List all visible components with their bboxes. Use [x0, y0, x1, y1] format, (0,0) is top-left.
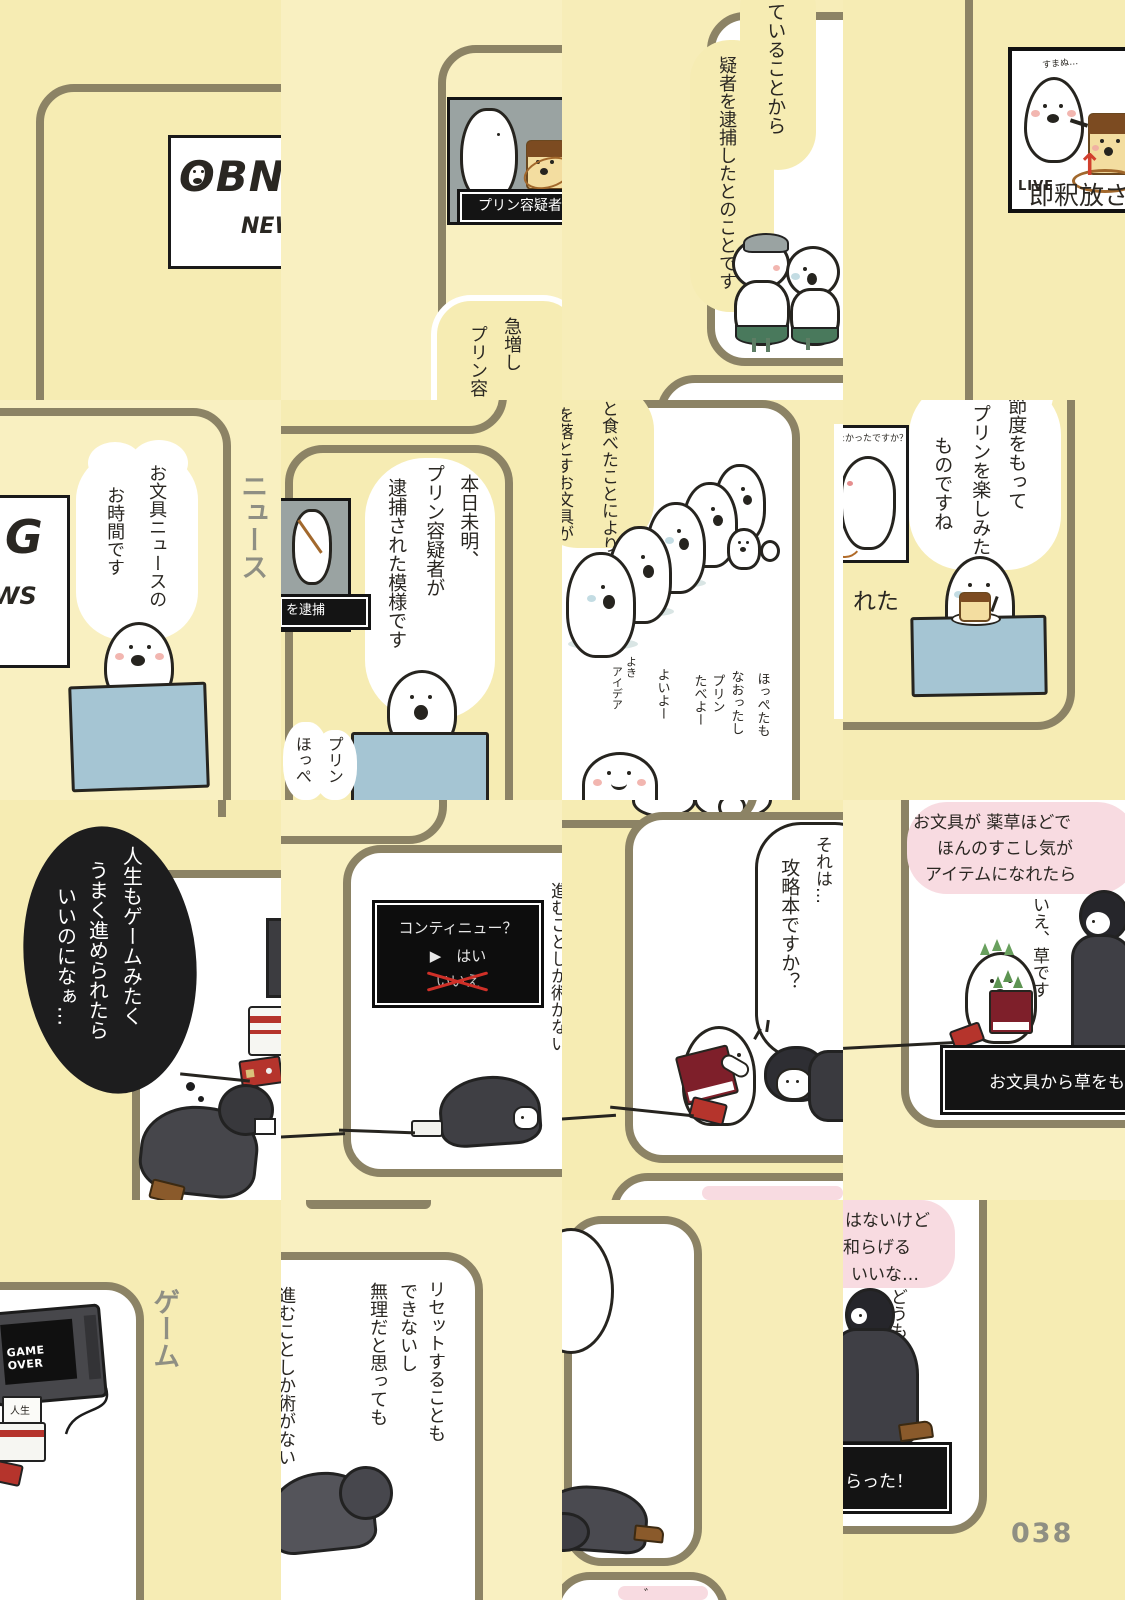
person-head: [339, 1466, 393, 1520]
chatter-text: プリン: [709, 674, 724, 713]
balloon-text: 人生もゲームみたく: [120, 846, 142, 1026]
small-blob: [727, 528, 761, 570]
speech-text: プリン: [325, 736, 343, 784]
tile-r0c1: 急増し プリン容 プリン容疑者を: [281, 0, 563, 400]
caption-text: プリン容疑者を: [478, 198, 563, 214]
boot: [633, 1524, 665, 1543]
side-note-text: 進むことしか術がない: [547, 882, 563, 1052]
pudding-snack: [959, 592, 991, 622]
bird-pants: [791, 327, 839, 345]
section-label-news: ニュース: [236, 472, 266, 580]
comic-page: OBNG NEWS 急増し プリン容 プリン容疑者を: [0, 0, 1125, 1600]
speech-text: プリン容: [467, 325, 487, 397]
eye-dot: [193, 170, 196, 173]
chatter-text: なおったし: [728, 670, 743, 735]
balloon-text: うまく進められたら: [86, 860, 108, 1040]
rope: [520, 151, 563, 195]
speech-bubble: [76, 452, 198, 640]
tile-r3c1: リセットすることも できないし 無理だと思っても 進むことしか術がない: [281, 1200, 563, 1600]
bird-body: [790, 288, 840, 346]
pudding-top: [527, 141, 563, 157]
speech-text: 本日未明、: [457, 474, 478, 569]
person-face: [513, 1106, 539, 1130]
bird-leg: [752, 338, 756, 352]
text-fragment: ゛: [644, 1584, 657, 1600]
speech-text: お時間です: [104, 486, 124, 576]
panel-frame-fragment: [281, 800, 447, 844]
game-console: [248, 1006, 282, 1056]
person-face: [776, 1068, 812, 1100]
balloon-tail-dot: [198, 1096, 204, 1102]
caption-text: を逮捕: [286, 603, 325, 618]
pink-text: 和らげる: [843, 1233, 911, 1258]
game-controller: [411, 1120, 443, 1137]
monologue-text: リセットすることも: [425, 1280, 445, 1442]
cap: [743, 233, 789, 253]
speech-fragment: れた: [853, 582, 899, 616]
speech-text: を落とすお文具が: [562, 406, 572, 542]
screen-option-yes: ▶ はい: [377, 945, 539, 966]
balloon-tail-dot: [186, 1082, 195, 1091]
page-number: 038: [1011, 1518, 1073, 1549]
eye-dot: [497, 133, 500, 136]
pink-text: お文具が 薬草ほどで: [913, 808, 1071, 833]
speech-text: ものですね: [931, 436, 952, 531]
speech-text: お文具ニュースの: [146, 464, 166, 608]
smile-mouth: [611, 777, 627, 790]
tiny-blob: [760, 540, 780, 562]
news-sign-subtitle: WS: [0, 582, 37, 610]
tv-screen: プリン容疑者を: [447, 97, 563, 225]
controller-cable: [281, 1132, 345, 1138]
pink-text: ほんのすこし気が: [937, 834, 1073, 859]
bird-body: [734, 280, 790, 346]
caption-box: を逮捕: [281, 597, 368, 627]
caption-box: らった！: [843, 1445, 949, 1511]
speech-text: と食べたことにより: [598, 400, 617, 553]
pink-text: アイテムになれたら: [925, 860, 1076, 885]
border-fragment: [306, 1200, 431, 1209]
game-screen: コンティニュー？ ▶ はい いいえ: [375, 903, 541, 1005]
tile-r3c3: はないけど 和らげる いいな… どうも… らった！ 038: [843, 1200, 1125, 1600]
speech-text: プリンを楽しみたい: [969, 404, 990, 575]
pink-text: いいな…: [851, 1260, 919, 1285]
monologue-text: 進むことしか術がない: [281, 1286, 295, 1466]
news-desk: [910, 615, 1047, 697]
cable: [44, 1386, 114, 1446]
panel-frame-fragment: [281, 400, 507, 434]
news-desk: [68, 682, 210, 793]
caption-box: お文具から草をも: [943, 1048, 1125, 1112]
chatter-text: アイデア: [610, 666, 622, 710]
news-sign-title: G: [5, 510, 43, 564]
monologue-text: できないし: [397, 1282, 417, 1372]
caption-text: 即釈放さ: [1029, 176, 1125, 212]
bird-pants: [735, 325, 789, 345]
caption-text: お文具から草をも: [989, 1068, 1125, 1093]
cartridge-label: 人生: [10, 1402, 30, 1417]
tile-r2c0: 人生もゲームみたく うまく進められたら いいのになぁ…: [0, 800, 282, 1200]
person-face: [1086, 912, 1110, 934]
screen-option-no: いいえ: [435, 970, 480, 991]
tile-r1c0: ニュース G WS お文具ニュースの お時間です: [0, 400, 282, 800]
news-sign-title: OBNG: [179, 152, 282, 201]
speech-text: 攻略本ですか？: [778, 858, 799, 991]
speech-bubble: 急増し プリン容: [431, 295, 563, 400]
balloon-text: いいのになぁ…: [54, 886, 76, 1026]
held-controller: [254, 1118, 276, 1135]
queue-blob: [566, 552, 636, 658]
caption-box: プリン容疑者を: [460, 192, 563, 222]
tile-r2c2: それは… 攻略本ですか？: [562, 800, 844, 1200]
screen-text: コンティニュー？: [377, 917, 539, 938]
person-body: [808, 1050, 844, 1122]
book-with-grass: [989, 990, 1033, 1034]
speech-text: 急増し: [501, 317, 521, 371]
panel-frame: [657, 375, 844, 400]
speech-text: それは…: [812, 836, 831, 904]
person-face: [851, 1308, 867, 1324]
news-sign: OBNG NEWS: [168, 135, 282, 269]
chatter-text: よき: [624, 656, 636, 678]
game-console: [0, 1422, 46, 1462]
tv-fragment: [266, 918, 282, 998]
pink-bubble-fragment: [702, 1186, 843, 1200]
news-desk: [351, 732, 489, 800]
pink-text: はないけど: [845, 1206, 930, 1231]
bird-leg: [806, 338, 810, 350]
monologue-text: 無理だと思っても: [367, 1282, 387, 1426]
tile-r3c0: ゲーム GAME OVER 人生: [0, 1200, 282, 1600]
mutter-text: すまぬ…: [1041, 54, 1078, 71]
section-label-game: ゲーム: [148, 1288, 178, 1369]
speech-text: 節度をもって: [1005, 400, 1026, 510]
chatter-text: ほっぺたも: [754, 672, 769, 737]
inset-picture: たかったですか？: [843, 425, 909, 563]
tv-screen: GAME OVER: [0, 1319, 77, 1385]
tile-r0c2: ていることから 疑者を逮捕したとのことです: [562, 0, 844, 400]
news-sign-subtitle: NEWS: [241, 214, 282, 239]
tile-r2c1: コンティニュー？ ▶ はい いいえ 進むことしか術がない: [281, 800, 563, 1200]
tile-r0c0: OBNG NEWS: [0, 0, 282, 400]
mouth: [193, 178, 202, 184]
game-over-text: GAME OVER: [6, 1341, 76, 1373]
tile-r3c2: ゛: [562, 1200, 844, 1600]
bird-leg: [766, 338, 770, 352]
news-sign: G WS: [0, 495, 70, 668]
tv-screen: を逮捕: [281, 498, 351, 632]
speech-text: 逮捕された模様です: [385, 478, 406, 649]
tile-r1c2: と食べたことにより を落とすお文具が ほっぺたも なおったし プリン たべよー …: [562, 400, 844, 800]
tile-r1c1: 本日未明、 プリン容疑者が 逮捕された模様です を逮捕 プリン ほっぺ: [281, 400, 563, 800]
mouth: [807, 273, 817, 285]
caption-text: らった！: [845, 1467, 913, 1492]
tile-r2c3: お文具が 薬草ほどで ほんのすこし気が アイテムになれたら いえ、草です お文具…: [843, 800, 1125, 1200]
tissue-character: [460, 108, 518, 202]
tile-r1c3: たかったですか？ れた 節度をもって プリンを楽しみたい ものですね: [843, 400, 1125, 800]
pudding-character: [526, 140, 563, 190]
speech-text: プリン容疑者が: [423, 464, 444, 597]
eye-dot: [201, 170, 204, 173]
speech-text: ほっぺ: [293, 736, 311, 784]
chatter-text: たべよー: [691, 674, 706, 726]
pink-bubble-fragment: [618, 1586, 708, 1600]
inset-note: たかったですか？: [843, 431, 908, 444]
chatter-text: よいよー: [654, 668, 669, 720]
controller-cable: [562, 1114, 616, 1121]
tile-r0c3: すまぬ… LIVE ↑ 即釈放さ: [843, 0, 1125, 400]
border-fragment: [218, 800, 226, 817]
speech-text: ていることから: [764, 2, 785, 135]
